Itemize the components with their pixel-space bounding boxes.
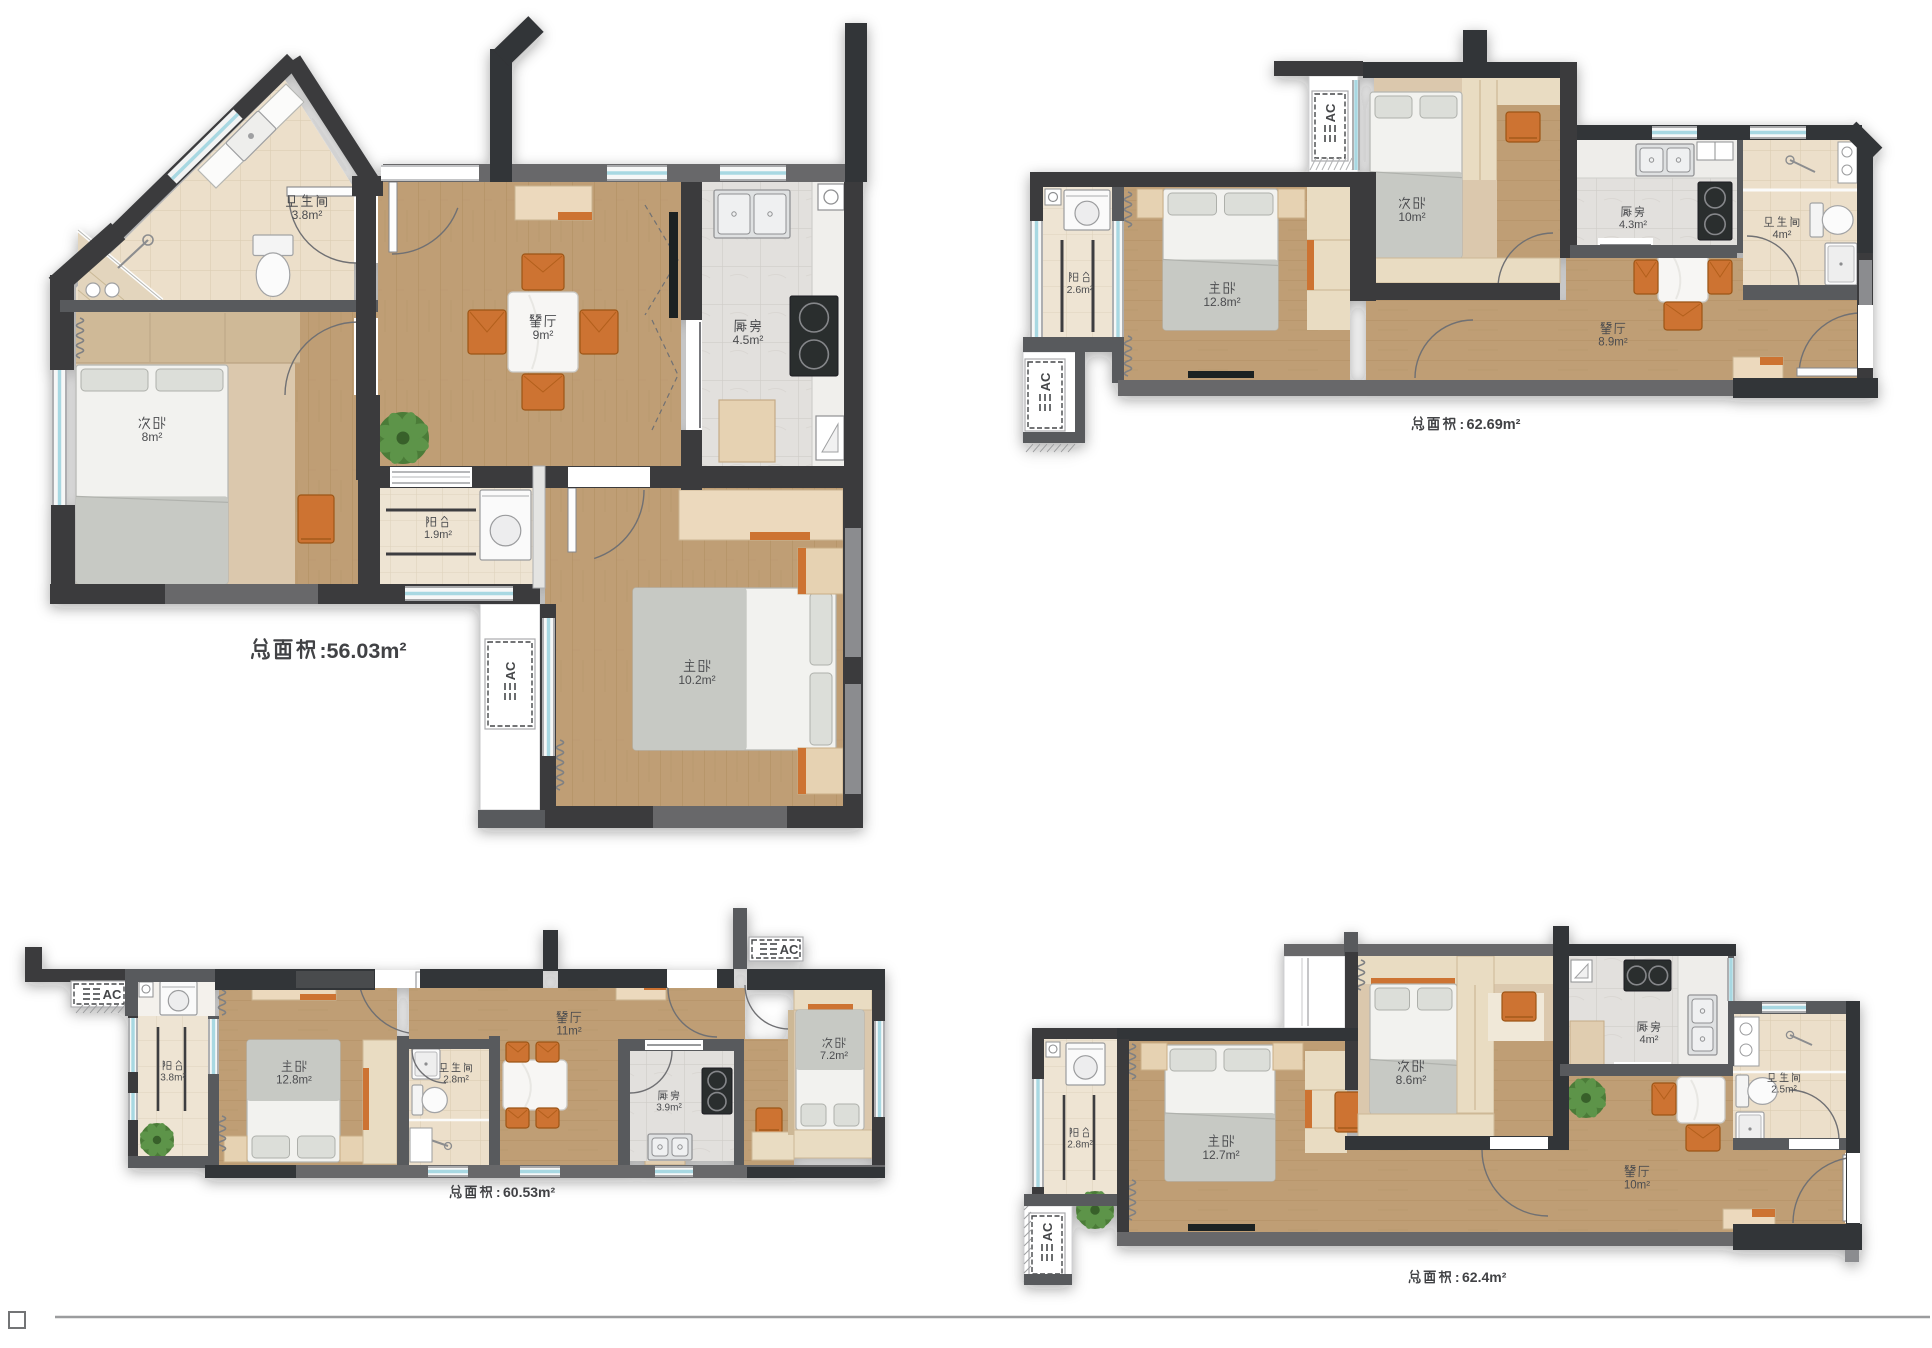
svg-text:10.2m²: 10.2m² [678,673,715,687]
svg-text:9m²: 9m² [533,328,554,342]
svg-text:4m²: 4m² [1773,229,1792,241]
svg-text:12.7m²: 12.7m² [1202,1148,1239,1162]
svg-text:62.4m²: 62.4m² [1462,1269,1507,1285]
svg-text:AC: AC [780,942,799,957]
svg-text::: : [1460,416,1465,432]
svg-text:1.9m²: 1.9m² [424,529,452,541]
svg-text::: : [496,1185,501,1200]
svg-text:4.5m²: 4.5m² [733,333,764,347]
svg-text:3.8m²: 3.8m² [160,1073,186,1084]
svg-text:11m²: 11m² [556,1026,582,1038]
svg-text:AC: AC [1040,1222,1055,1241]
svg-text:8.6m²: 8.6m² [1396,1073,1427,1087]
svg-text:62.69m²: 62.69m² [1467,417,1521,433]
svg-text:4m²: 4m² [1640,1034,1659,1046]
svg-text:AC: AC [503,661,518,680]
svg-text:10m²: 10m² [1624,1180,1650,1192]
svg-text:8m²: 8m² [142,430,163,444]
svg-text:10m²: 10m² [1398,210,1425,224]
svg-text::: : [1455,1270,1460,1285]
svg-text:7.2m²: 7.2m² [820,1050,848,1062]
svg-text:2.8m²: 2.8m² [443,1075,469,1086]
svg-text:8.9m²: 8.9m² [1598,337,1628,349]
svg-text:56.03m²: 56.03m² [327,639,407,663]
svg-text:2.5m²: 2.5m² [1771,1085,1797,1096]
svg-text:2.8m²: 2.8m² [1067,1140,1093,1151]
svg-text:AC: AC [103,987,122,1002]
svg-text:2.6m²: 2.6m² [1067,284,1094,296]
svg-text:3.8m²: 3.8m² [292,208,323,222]
svg-text:AC: AC [1038,372,1053,391]
svg-text:4.3m²: 4.3m² [1619,219,1647,231]
svg-text:60.53m²: 60.53m² [503,1184,555,1200]
svg-text:12.8m²: 12.8m² [1203,295,1240,309]
svg-text::: : [320,640,327,663]
svg-text:3.9m²: 3.9m² [656,1103,682,1114]
svg-text:12.8m²: 12.8m² [276,1075,312,1087]
svg-text:AC: AC [1323,103,1338,122]
